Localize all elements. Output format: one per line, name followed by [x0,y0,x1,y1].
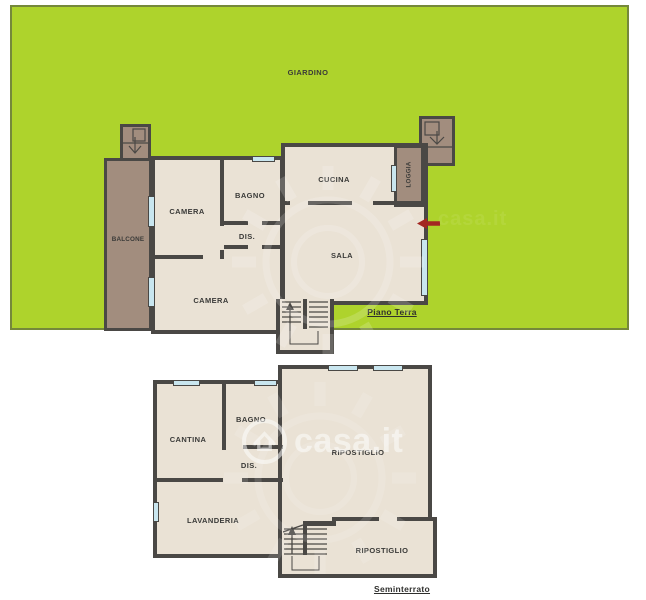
door-opening [379,517,397,522]
room-label-camera-top: CAMERA [152,207,222,216]
wall-segment [373,201,423,205]
room-label-cantina: CANTINA [153,435,223,444]
window [153,502,159,522]
window [391,165,397,192]
room-label-dis: DIS. [217,232,277,241]
window [173,380,200,386]
room-label-bagno-basement: BAGNO [221,415,281,424]
room-label-ripostiglio-main: RIPOSTIGLIO [313,448,403,457]
wall-segment [308,201,352,205]
wall-segment [243,445,283,449]
wall-segment [242,478,283,482]
window [328,365,358,371]
entrance-arrow-icon [417,218,440,229]
room-label-dis-basement: DIS. [219,461,279,470]
wall-segment [224,221,248,225]
staircase-basement [283,523,331,575]
wall-segment [262,245,281,249]
garden-label: GIARDINO [268,68,348,77]
window [421,239,428,296]
staircase-ground [276,299,334,354]
room-label-camera-bottom: CAMERA [176,296,246,305]
window [148,277,155,307]
wall-segment [153,478,223,482]
room-label-sala: SALA [312,251,372,260]
room-label-lavanderia: LAVANDERIA [168,516,258,525]
wall-segment [224,245,248,249]
floor-caption-ground: Piano Terra [357,307,427,317]
balcony-label: BALCONE [105,236,151,243]
room-label-ripostiglio-small: RIPOSTIGLIO [337,546,427,555]
loggia-label: LOGGIA [406,145,413,205]
floor-caption-basement: Seminterrato [367,584,437,594]
window [373,365,403,371]
room-label-cucina: CUCINA [299,175,369,184]
wall-segment [262,221,281,225]
basement-storage-main [278,365,432,527]
room-label-bagno: BAGNO [215,191,285,200]
stair-up-icon [283,523,331,575]
wall-segment [220,250,224,259]
wall-segment [285,201,290,205]
wall-segment [151,255,203,259]
external-stair-box-left [120,124,151,161]
floor-plan-image: GIARDINO BALCONE LOGGIA [0,0,646,600]
balcony-area [104,158,152,331]
window [254,380,277,386]
window [252,156,275,162]
stair-down-icon [123,127,148,158]
stair-up-icon [280,299,330,349]
